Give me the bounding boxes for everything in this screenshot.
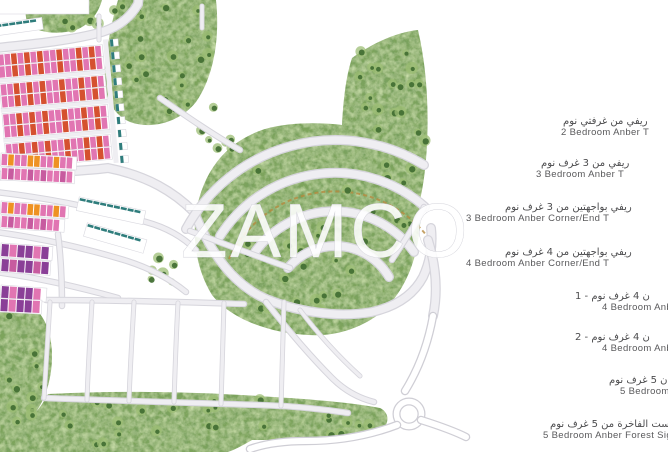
- legend-item-ar: ريفي من غرفتي نوم: [563, 116, 648, 128]
- legend-item-ar: ريفي بواجهتين من 4 غرف نوم: [505, 247, 632, 259]
- legend-item-ar: ريفي من 3 غرف نوم: [541, 158, 629, 170]
- watermark: ZAMCO: [181, 189, 470, 274]
- legend-item-en: 4 Bedroom Anb: [602, 344, 668, 355]
- legend-item-en: 4 Bedroom Anb: [602, 303, 668, 314]
- legend-item-ar: ن 5 غرف نوم: [609, 375, 668, 387]
- legend-item-ar: ن 4 غرف نوم - 1: [575, 291, 650, 303]
- legend-item-ar: وريست الفاخرة من 5 غرف نوم: [550, 419, 668, 431]
- legend-item-en: 3 Bedroom Anber T: [536, 170, 624, 181]
- legend-item-en: 3 Bedroom Anber Corner/End T: [466, 214, 609, 225]
- legend-item-en: 5 Bedroom A: [620, 387, 668, 398]
- legend-item-en: 2 Bedroom Anber T: [561, 128, 649, 139]
- legend-item-ar: ريفي بواجهتين من 3 غرف نوم: [505, 202, 632, 214]
- legend-item-en: 4 Bedroom Anber Corner/End T: [466, 259, 609, 270]
- legend-item-ar: ن 4 غرف نوم - 2: [575, 332, 650, 344]
- community-master-plan-map: ZAMCO: [0, 0, 668, 452]
- legend-item-en: 5 Bedroom Anber Forest Sign: [543, 431, 668, 442]
